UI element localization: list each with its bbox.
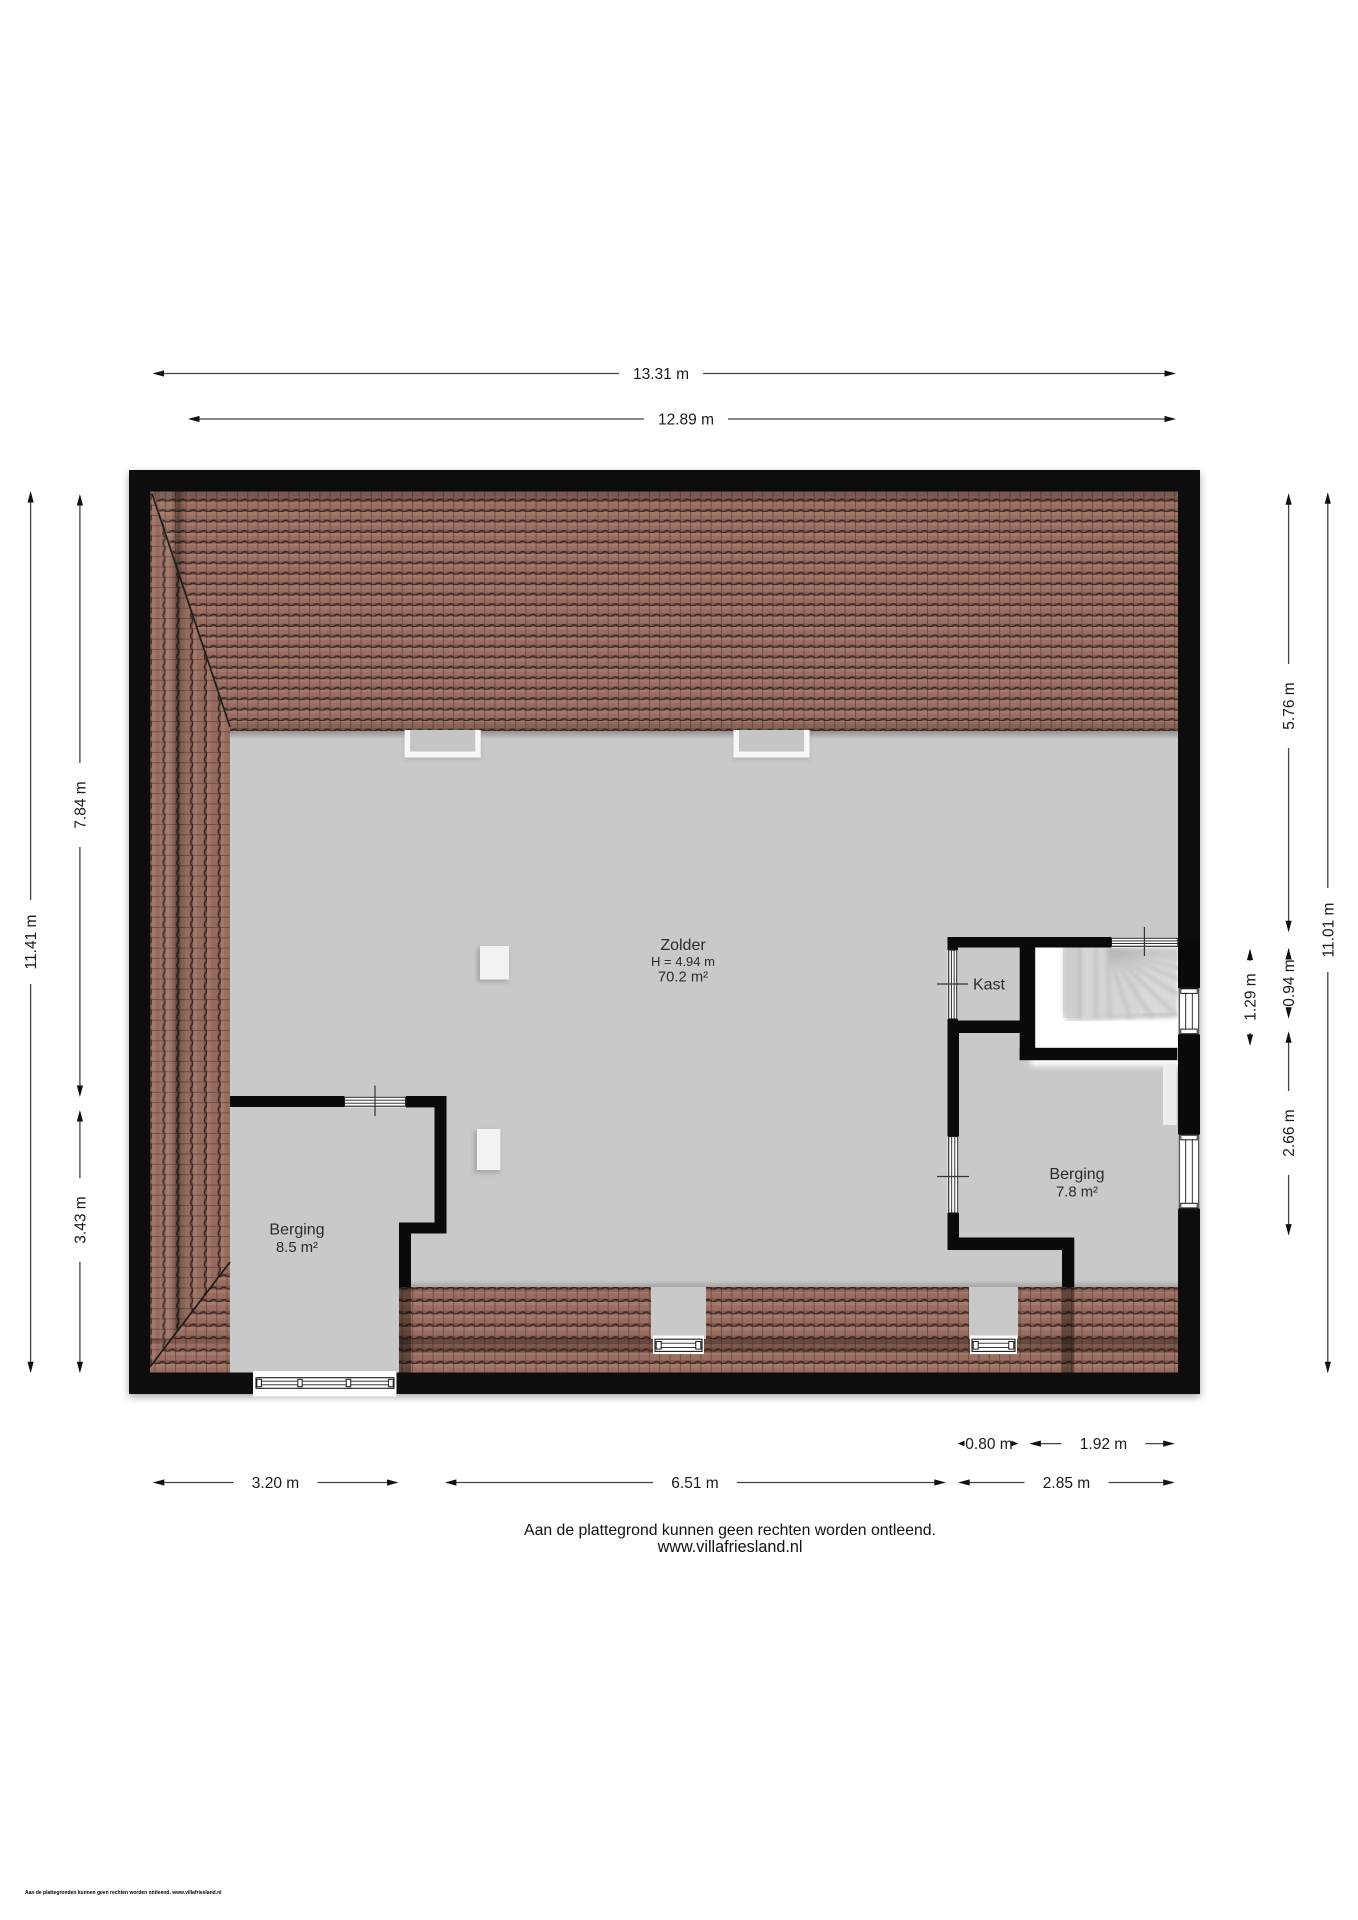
- svg-text:Berging: Berging: [269, 1222, 324, 1239]
- svg-text:6.51 m: 6.51 m: [671, 1475, 718, 1492]
- svg-text:1.29 m: 1.29 m: [1243, 973, 1260, 1020]
- svg-text:70.2 m²: 70.2 m²: [658, 970, 708, 986]
- svg-text:5.76 m: 5.76 m: [1281, 682, 1298, 729]
- svg-text:7.8 m²: 7.8 m²: [1056, 1185, 1098, 1201]
- svg-text:3.20 m: 3.20 m: [252, 1475, 299, 1492]
- svg-text:1.92 m: 1.92 m: [1080, 1436, 1127, 1453]
- svg-text:2.85 m: 2.85 m: [1043, 1475, 1090, 1492]
- svg-text:0.94 m: 0.94 m: [1281, 959, 1298, 1006]
- svg-text:3.43 m: 3.43 m: [72, 1196, 89, 1243]
- svg-text:0.80 m: 0.80 m: [965, 1436, 1012, 1453]
- svg-text:www.villafriesland.nl: www.villafriesland.nl: [657, 1538, 803, 1556]
- svg-text:Aan de plattegrond kunnen geen: Aan de plattegrond kunnen geen rechten w…: [524, 1522, 936, 1539]
- svg-text:H = 4.94 m: H = 4.94 m: [651, 954, 715, 969]
- svg-text:Aan de plattegronden kunnen ge: Aan de plattegronden kunnen geen rechten…: [25, 1890, 222, 1896]
- svg-text:11.01 m: 11.01 m: [1320, 903, 1337, 958]
- svg-text:Zolder: Zolder: [660, 937, 706, 954]
- svg-text:13.31 m: 13.31 m: [633, 366, 689, 383]
- svg-text:8.5 m²: 8.5 m²: [276, 1240, 318, 1256]
- svg-text:12.89 m: 12.89 m: [658, 412, 714, 429]
- svg-text:11.41 m: 11.41 m: [23, 915, 40, 970]
- svg-text:2.66 m: 2.66 m: [1281, 1109, 1298, 1156]
- svg-text:7.84 m: 7.84 m: [72, 781, 89, 828]
- svg-text:Kast: Kast: [973, 977, 1006, 994]
- svg-text:Berging: Berging: [1049, 1166, 1104, 1183]
